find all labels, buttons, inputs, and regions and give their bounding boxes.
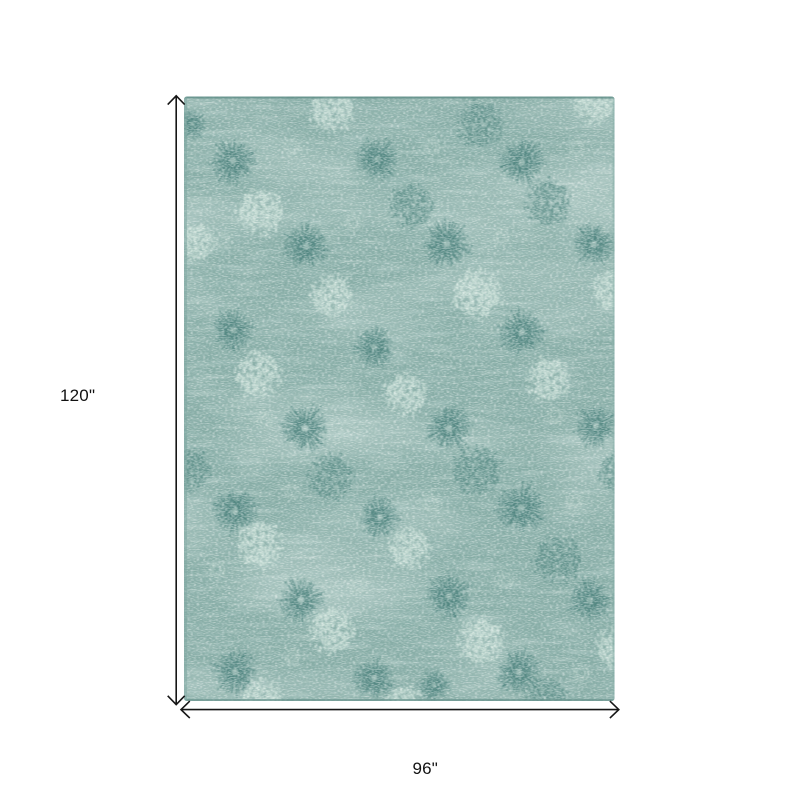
svg-text:120": 120" bbox=[60, 386, 95, 405]
svg-text:96": 96" bbox=[413, 759, 439, 778]
